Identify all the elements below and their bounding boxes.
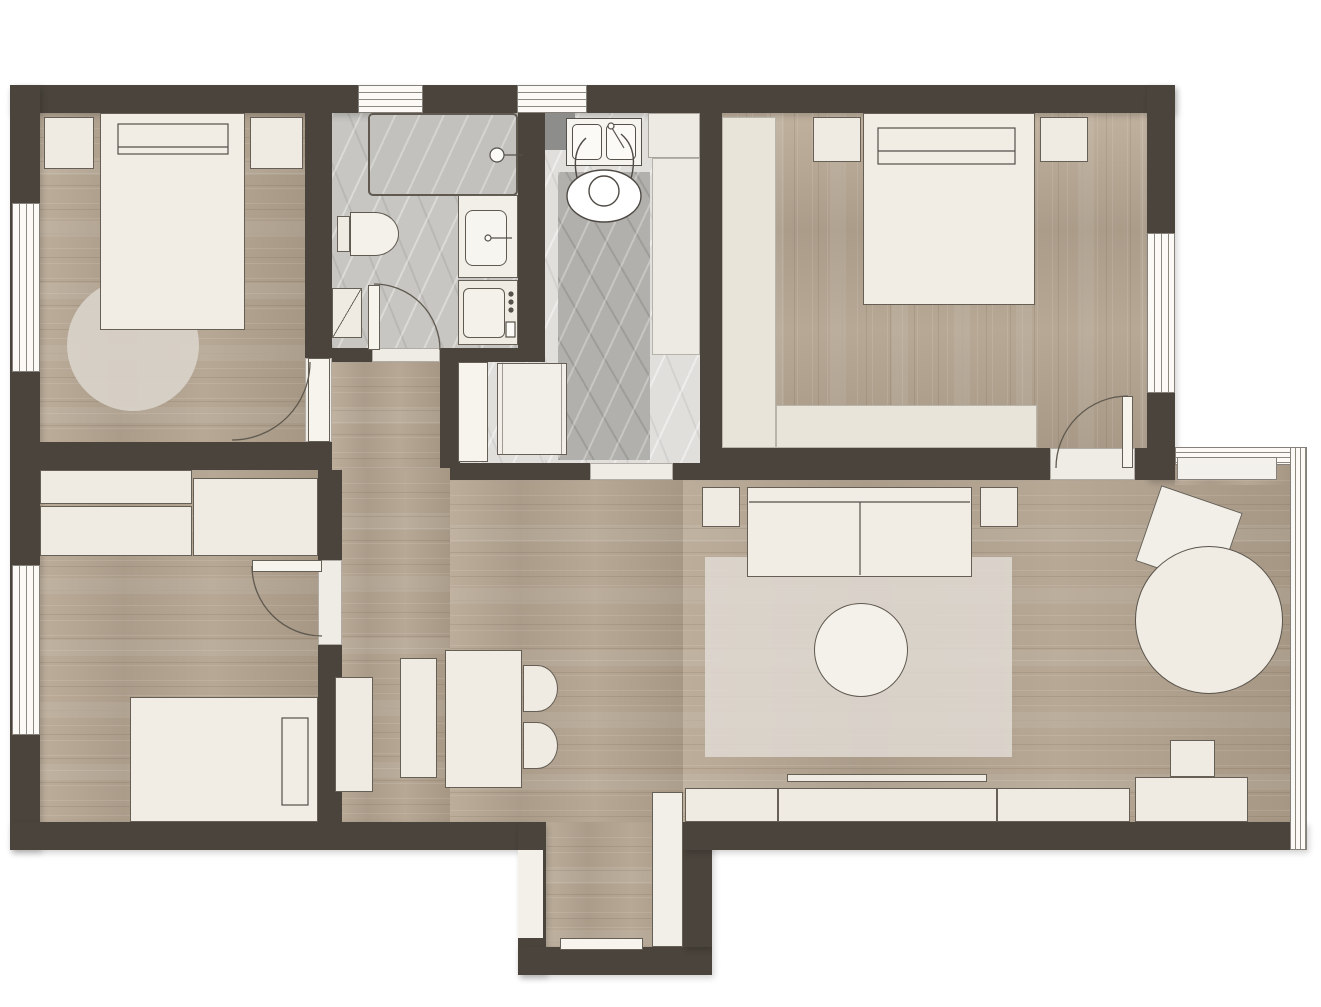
wall-bedroom1-right xyxy=(305,85,332,358)
window-right-bedroom2 xyxy=(1147,233,1175,393)
threshold-kitchen xyxy=(590,463,673,480)
side-table-right xyxy=(980,487,1018,527)
wall-hallway-stub xyxy=(440,362,460,468)
dining-table xyxy=(445,650,522,788)
wall-bottom-left xyxy=(10,822,518,850)
bed-bedroom2 xyxy=(863,113,1035,305)
dining-bench xyxy=(400,658,437,778)
wall-left xyxy=(10,85,40,850)
media-console-2 xyxy=(778,788,997,822)
toilet xyxy=(350,212,399,256)
bathtub xyxy=(368,113,518,196)
wall-bathroom-kitchen xyxy=(518,113,545,362)
wall-bathroom-bottom-left xyxy=(332,348,372,362)
wall-bedroom2-bottom xyxy=(722,448,1050,480)
sofa xyxy=(747,487,972,577)
wall-bedroom2-bottom-right xyxy=(1135,448,1175,480)
door-bedroom1 xyxy=(308,358,330,442)
window-left-bedroom3 xyxy=(12,565,40,735)
nightstand-bedroom2-left xyxy=(813,117,861,162)
corner-unit xyxy=(332,288,362,338)
cabinet-rail xyxy=(561,364,562,454)
counter-right xyxy=(652,158,700,355)
media-console-1 xyxy=(685,788,778,822)
tall-cabinet xyxy=(497,363,567,455)
counter-top xyxy=(648,113,700,158)
wall-entry-bottom xyxy=(518,947,712,975)
stone-runner xyxy=(558,172,650,460)
cabinet-rail xyxy=(502,364,503,454)
sink-basin-right xyxy=(606,124,636,160)
window-sill xyxy=(1177,457,1277,480)
window-top-kitchen xyxy=(517,85,587,113)
entry-wall-panel xyxy=(518,850,543,938)
side-table-left xyxy=(702,487,740,527)
door-bedroom2 xyxy=(1122,396,1133,468)
wall-bedroom3-right-upper xyxy=(318,470,342,560)
bed-bedroom1 xyxy=(100,113,245,330)
door-kitchen xyxy=(458,362,488,462)
media-console-3 xyxy=(997,788,1130,822)
desk-chair xyxy=(1170,740,1215,777)
wall-bottom-right xyxy=(683,822,1307,850)
threshold-bedroom3 xyxy=(318,560,342,645)
washbasin xyxy=(465,210,507,266)
wardrobe-bedroom2-bottom xyxy=(776,405,1037,448)
bed-bedroom3 xyxy=(130,697,318,822)
door-bathroom xyxy=(368,285,380,350)
wall-kitchen-bottom-left xyxy=(450,463,590,480)
entry-closet xyxy=(652,792,683,947)
threshold-bathroom xyxy=(372,348,440,362)
desk xyxy=(1135,777,1248,822)
round-table xyxy=(1135,546,1283,694)
floor-plan xyxy=(0,0,1321,1007)
wall-kitchen-bottom-right xyxy=(673,463,700,480)
washing-machine-door xyxy=(463,288,505,338)
glass-wall-right xyxy=(1290,447,1307,850)
wall-top xyxy=(10,85,1175,113)
wardrobe-bedroom3-a xyxy=(40,470,192,504)
door-bedroom3 xyxy=(252,560,322,572)
nightstand-bedroom1-left xyxy=(44,117,94,169)
wardrobe-bedroom3-c xyxy=(193,478,318,556)
nightstand-bedroom2-right xyxy=(1040,117,1088,162)
coffee-table xyxy=(814,603,908,697)
dining-sideboard xyxy=(335,677,373,792)
window-top-bathroom xyxy=(358,85,423,113)
wardrobe-bedroom3-b xyxy=(40,506,192,556)
nightstand-bedroom1-right xyxy=(250,117,303,169)
window-left-bedroom1 xyxy=(12,203,40,372)
floor-hallway xyxy=(332,362,440,468)
toilet-tank xyxy=(337,216,350,252)
wardrobe-bedroom2-left xyxy=(722,117,776,448)
sink-basin-left xyxy=(572,124,602,160)
wall-kitchen-right xyxy=(700,113,722,480)
tv xyxy=(787,774,987,782)
wall-bedroom1-bottom xyxy=(40,442,332,470)
entry-door xyxy=(560,938,643,950)
